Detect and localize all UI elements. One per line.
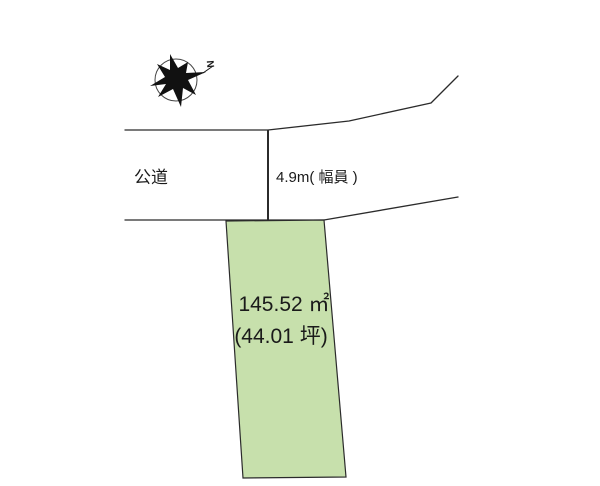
compass: N [150, 54, 215, 107]
road-width-label: 4.9m( 幅員 ) [276, 169, 358, 186]
road-lower-edge [125, 197, 458, 220]
compass-north-label: N [204, 60, 216, 68]
compass-star-icon [150, 54, 206, 107]
land-plot-diagram: 公道 4.9m( 幅員 ) 145.52 ㎡ (44.01 坪) N [0, 0, 600, 486]
land-plot: 145.52 ㎡ (44.01 坪) [226, 220, 346, 478]
plot-polygon [226, 220, 346, 478]
site-plan-canvas: 公道 4.9m( 幅員 ) 145.52 ㎡ (44.01 坪) N [0, 0, 600, 486]
plot-area-tsubo-label: (44.01 坪) [234, 325, 327, 348]
road: 公道 4.9m( 幅員 ) [125, 76, 458, 220]
road-label: 公道 [134, 168, 168, 187]
plot-area-sqm-label: 145.52 ㎡ [238, 292, 329, 316]
